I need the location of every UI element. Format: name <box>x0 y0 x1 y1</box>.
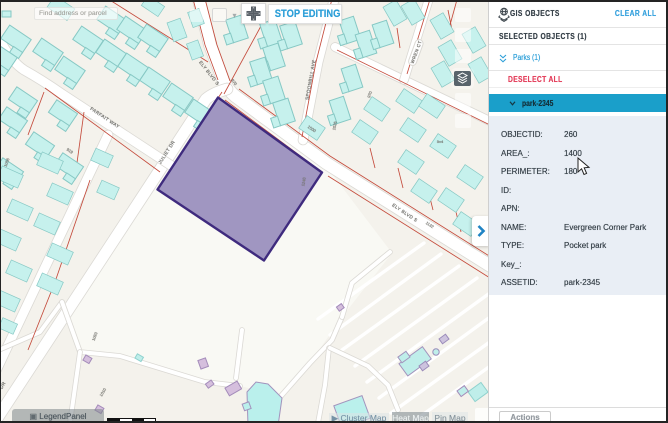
svg-text:5v4: 5v4 <box>437 139 444 144</box>
